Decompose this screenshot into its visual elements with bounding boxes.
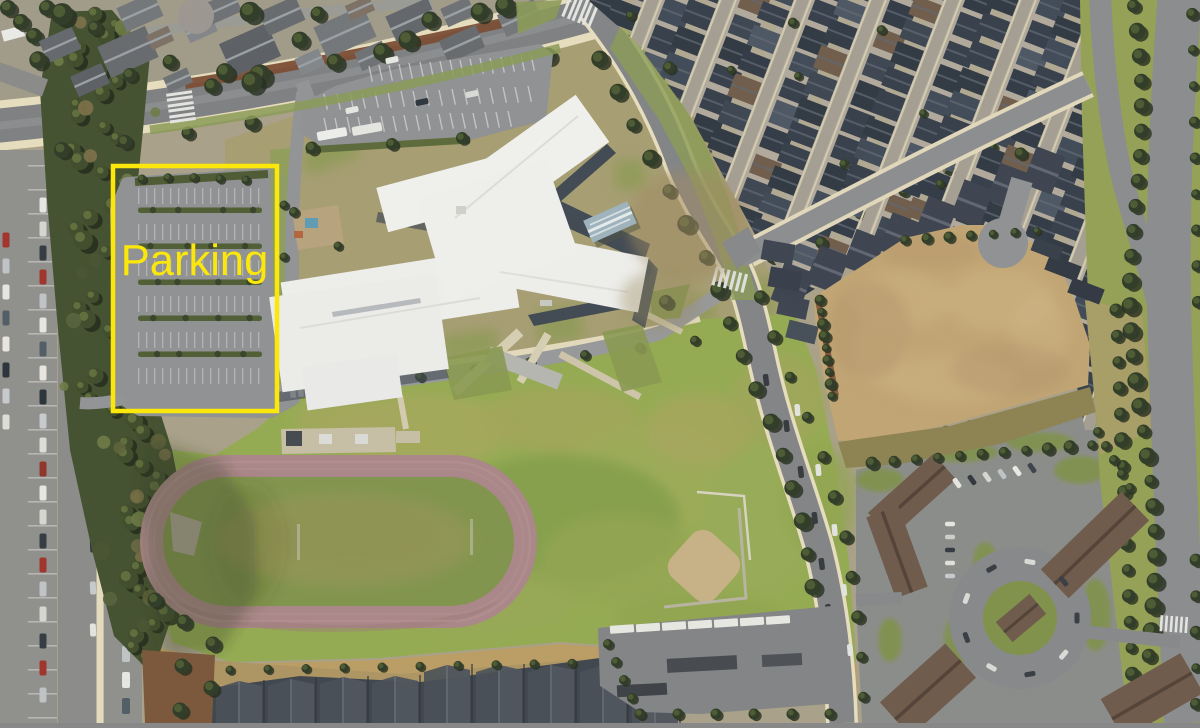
svg-text:Parking: Parking xyxy=(121,237,268,285)
